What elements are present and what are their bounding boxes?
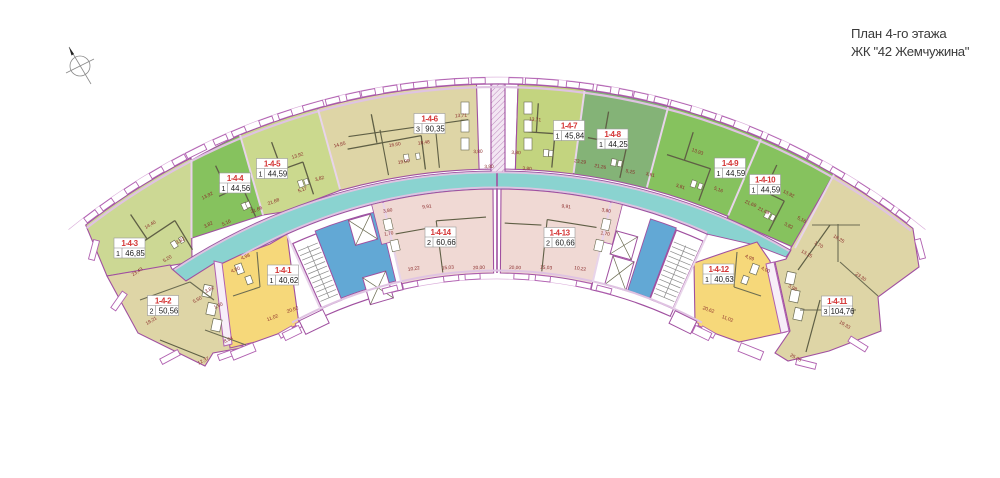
svg-text:3: 3 — [824, 307, 828, 316]
svg-text:40,62: 40,62 — [279, 276, 299, 285]
svg-text:1: 1 — [717, 169, 721, 178]
svg-text:60,66: 60,66 — [555, 239, 575, 248]
svg-text:50,56: 50,56 — [159, 307, 179, 316]
svg-text:1-4-12: 1-4-12 — [708, 265, 729, 274]
svg-text:1-4-4: 1-4-4 — [227, 174, 244, 183]
svg-text:1: 1 — [752, 186, 756, 195]
svg-text:1-4-7: 1-4-7 — [561, 121, 578, 130]
svg-text:2: 2 — [150, 307, 154, 316]
svg-text:1-4-3: 1-4-3 — [121, 239, 138, 248]
svg-text:1-4-11: 1-4-11 — [827, 297, 848, 306]
svg-text:3,80: 3,80 — [484, 164, 494, 170]
svg-text:104,76: 104,76 — [831, 307, 855, 316]
svg-text:44,56: 44,56 — [231, 184, 251, 193]
svg-text:1-4-8: 1-4-8 — [604, 130, 621, 139]
svg-text:20,00: 20,00 — [509, 265, 522, 271]
svg-text:1: 1 — [705, 275, 709, 284]
svg-text:1-4-2: 1-4-2 — [155, 296, 172, 305]
svg-text:1-4-6: 1-4-6 — [421, 114, 438, 123]
svg-text:9,91: 9,91 — [422, 203, 432, 210]
svg-text:1: 1 — [599, 140, 603, 149]
svg-text:44,59: 44,59 — [726, 169, 746, 178]
svg-text:2: 2 — [546, 239, 550, 248]
svg-text:13,71: 13,71 — [455, 113, 468, 120]
svg-text:1-4-13: 1-4-13 — [549, 228, 570, 237]
svg-text:45,84: 45,84 — [565, 132, 585, 141]
svg-text:1-4-9: 1-4-9 — [722, 159, 739, 168]
svg-text:2: 2 — [427, 238, 431, 247]
svg-text:40,63: 40,63 — [714, 275, 734, 284]
svg-text:1-4-10: 1-4-10 — [755, 175, 776, 184]
svg-text:План 4-го этажа: План 4-го этажа — [851, 26, 947, 41]
svg-text:3,80: 3,80 — [522, 166, 532, 172]
svg-text:3,80: 3,80 — [511, 150, 521, 156]
svg-text:13,71: 13,71 — [529, 117, 542, 124]
svg-text:1: 1 — [556, 132, 560, 141]
svg-text:1: 1 — [116, 249, 120, 258]
svg-text:1: 1 — [222, 184, 226, 193]
svg-text:90,35: 90,35 — [425, 125, 445, 134]
svg-text:3: 3 — [416, 125, 420, 134]
svg-text:1: 1 — [270, 276, 274, 285]
svg-text:15,03: 15,03 — [540, 264, 553, 271]
svg-text:20,00: 20,00 — [473, 265, 486, 271]
svg-text:1-4-5: 1-4-5 — [264, 159, 281, 168]
svg-text:ЖК "42 Жемчужина": ЖК "42 Жемчужина" — [851, 44, 970, 59]
svg-text:60,66: 60,66 — [436, 238, 456, 247]
svg-text:44,25: 44,25 — [608, 140, 628, 149]
svg-text:1: 1 — [259, 170, 263, 179]
svg-text:46,85: 46,85 — [125, 249, 145, 258]
svg-text:44,59: 44,59 — [761, 186, 781, 195]
svg-text:15,03: 15,03 — [442, 264, 455, 271]
svg-text:3,80: 3,80 — [473, 149, 483, 155]
svg-text:44,59: 44,59 — [268, 170, 288, 179]
svg-text:1-4-14: 1-4-14 — [430, 228, 451, 237]
svg-text:1-4-1: 1-4-1 — [275, 266, 292, 275]
svg-text:9,91: 9,91 — [561, 204, 571, 211]
